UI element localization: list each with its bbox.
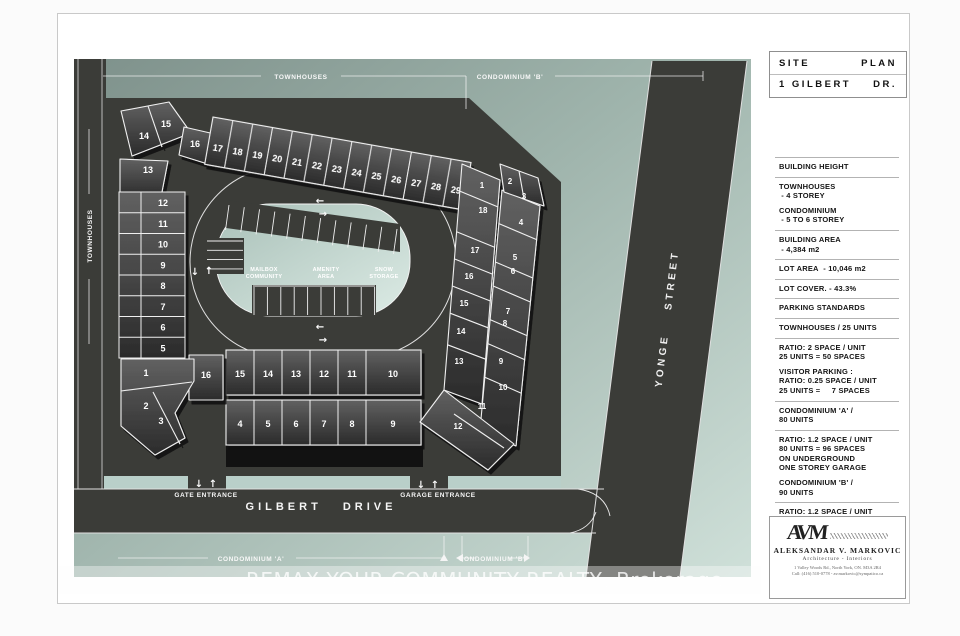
info-line: 25 UNITS = 7 SPACES [779, 386, 906, 396]
unit-number: 22 [311, 160, 323, 172]
info-line: RATIO: 2 SPACE / UNIT [779, 343, 906, 353]
label-townhouses-top: TOWNHOUSES [274, 74, 327, 81]
label-condo-b-bottom: CONDOMINIUM 'B' [459, 556, 526, 563]
info-line: 90 UNITS [779, 488, 906, 498]
info-line: ONE STOREY GARAGE [779, 463, 906, 473]
unit-number: 5 [513, 253, 518, 262]
info-section: LOT COVER. - 43.3% [769, 284, 906, 294]
svg-text:↓: ↓ [417, 480, 425, 491]
unit-number: 1 [143, 368, 148, 378]
unit-number: 15 [460, 299, 469, 308]
info-line: LOT AREA - 10,046 m2 [779, 264, 906, 274]
info-section: CONDOMINIUM - 5 TO 6 STOREY [769, 206, 906, 225]
unit-number: 19 [252, 150, 264, 162]
label-condo-b-top: CONDOMINIUM 'B' [477, 74, 544, 81]
info-line: CONDOMINIUM [779, 206, 906, 216]
unit-number: 25 [371, 170, 383, 182]
info-section: LOT AREA - 10,046 m2 [769, 264, 906, 274]
info-line: BUILDING HEIGHT [779, 162, 906, 172]
unit-number: 10 [499, 383, 508, 392]
svg-text:↑: ↑ [431, 480, 439, 491]
info-line: RATIO: 0.25 SPACE / UNIT [779, 376, 906, 386]
unit-number: 21 [291, 157, 303, 169]
info-line: - 5 TO 6 STOREY [779, 215, 906, 225]
info-line: 80 UNITS = 96 SPACES [779, 444, 906, 454]
info-line: - 4,384 m2 [779, 245, 906, 255]
watermark-text: REMAX YOUR COMMUNITY REALTY, Brokerage [208, 568, 761, 592]
left-road [74, 59, 106, 489]
info-section: RATIO: 1.2 SPACE / UNIT80 UNITS = 96 SPA… [769, 435, 906, 473]
title-dr: DR. [873, 75, 897, 95]
svg-text:↓: ↓ [191, 267, 199, 278]
unit-number: 6 [511, 267, 516, 276]
svg-text:↑: ↑ [205, 266, 213, 277]
unit-number: 20 [271, 153, 283, 165]
label-gilbert-drive: GILBERT DRIVE [246, 501, 397, 513]
unit-number: 10 [158, 240, 168, 250]
unit-number: 12 [158, 198, 168, 208]
unit-number: 7 [321, 419, 326, 429]
unit-number: 11 [158, 219, 168, 229]
unit-number: 14 [263, 369, 273, 379]
unit-number: 4 [519, 218, 524, 227]
info-section: CONDOMINIUM 'A' /80 UNITS [769, 406, 906, 425]
avm-monogram: AVM [786, 520, 827, 545]
label-townhouses-left: TOWNHOUSES [87, 209, 94, 262]
info-line: ON UNDERGROUND [779, 454, 906, 464]
info-line: 25 UNITS = 50 SPACES [779, 352, 906, 362]
unit-number: 4 [237, 419, 242, 429]
info-section: BUILDING HEIGHT [769, 162, 906, 172]
title-plan: PLAN [861, 54, 897, 74]
unit-number: 27 [410, 177, 422, 189]
garage-driveway [410, 476, 448, 489]
unit-number: 9 [499, 357, 504, 366]
unit-number: 8 [160, 281, 165, 291]
info-line: TOWNHOUSES [779, 182, 906, 192]
unit-number: 26 [391, 174, 403, 186]
info-line: RATIO: 1.2 SPACE / UNIT [779, 435, 906, 445]
unit-number: 13 [143, 165, 153, 175]
unit-number: 5 [160, 343, 165, 353]
unit-number: 8 [349, 419, 354, 429]
info-line: BUILDING AREA [779, 235, 906, 245]
gate-driveway [188, 476, 226, 489]
unit-number: 23 [331, 163, 343, 175]
unit-number: 8 [503, 319, 508, 328]
architect-logo-block: AVM ALEKSANDAR V. MARKOVIC Architecture … [769, 516, 906, 599]
label-amenity: AMENITY [313, 267, 340, 273]
unit-number: 16 [201, 370, 211, 380]
unit-number: 9 [390, 419, 395, 429]
townhouse-left-column: 12111098765 [119, 192, 185, 358]
building-plinth [226, 445, 423, 467]
unit-number: 12 [454, 422, 463, 431]
info-line: CONDOMINIUM 'A' / [779, 406, 906, 416]
svg-text:AREA: AREA [318, 274, 335, 280]
site-plan-drawing: 17181920212223242526272829 12111098765 1… [58, 14, 761, 602]
unit-number: 10 [388, 369, 398, 379]
unit-number: 14 [139, 131, 149, 141]
label-mailbox: MAILBOX [250, 267, 277, 273]
info-line: PARKING STANDARDS [779, 303, 906, 313]
svg-text:COMMUNITY: COMMUNITY [246, 274, 283, 280]
unit-number: 28 [430, 181, 442, 193]
info-line: 80 UNITS [779, 415, 906, 425]
unit-number: 16 [190, 139, 200, 149]
svg-text:STORAGE: STORAGE [369, 274, 398, 280]
architect-name: ALEKSANDAR V. MARKOVIC [770, 546, 905, 555]
unit-number: 13 [455, 357, 464, 366]
info-panel: BUILDING HEIGHTTOWNHOUSES - 4 STOREYCOND… [769, 153, 906, 551]
label-gate-entrance: GATE ENTRANCE [174, 492, 237, 499]
unit-number: 15 [235, 369, 245, 379]
unit-number: 16 [465, 272, 474, 281]
title-block: SITE PLAN 1 GILBERT DR. [769, 51, 907, 98]
info-section: CONDOMINIUM 'B' /90 UNITS [769, 478, 906, 497]
info-section: RATIO: 2 SPACE / UNIT25 UNITS = 50 SPACE… [769, 343, 906, 362]
unit-number: 18 [479, 206, 488, 215]
info-section: PARKING STANDARDS [769, 303, 906, 313]
info-line: CONDOMINIUM 'B' / [779, 478, 906, 488]
info-section: TOWNHOUSES - 4 STOREY [769, 182, 906, 201]
sidewalk [104, 476, 561, 489]
unit-number: 7 [160, 302, 165, 312]
unit-number: 12 [319, 369, 329, 379]
title-address: 1 GILBERT [779, 75, 851, 95]
info-section: VISITOR PARKING :RATIO: 0.25 SPACE / UNI… [769, 367, 906, 396]
unit-number: 3 [158, 416, 163, 426]
unit-number: 11 [478, 402, 487, 411]
svg-text:↓: ↓ [195, 479, 203, 490]
architect-subtitle: Architecture - Interiors [770, 556, 905, 562]
page: { "title_block": { "line1_left": "SITE",… [0, 0, 960, 636]
hatch-line [830, 533, 888, 539]
architect-contact: Call: (416) 510-0778 - av.markovic@sympa… [770, 571, 905, 577]
svg-text:→: → [319, 209, 327, 220]
label-garage-entrance: GARAGE ENTRANCE [400, 492, 476, 499]
title-site: SITE [779, 54, 810, 74]
unit-number: 17 [212, 143, 224, 155]
unit-number: 14 [457, 327, 466, 336]
unit-number: 6 [160, 323, 165, 333]
label-snow-storage: SNOW [375, 267, 394, 273]
info-section: BUILDING AREA - 4,384 m2 [769, 235, 906, 254]
unit-number: 2 [143, 401, 148, 411]
parking-stalls-bottom [252, 285, 376, 316]
svg-text:←: ← [316, 322, 324, 333]
unit-number: 3 [522, 192, 527, 201]
unit-number: 9 [160, 260, 165, 270]
unit-number: 24 [351, 167, 363, 179]
condo-a-lower-row: 456789 [226, 400, 421, 445]
info-line: LOT COVER. - 43.3% [779, 284, 906, 294]
unit-number: 11 [347, 369, 357, 379]
label-condo-a-bottom: CONDOMINIUM 'A' [218, 556, 285, 563]
unit-number: 7 [506, 307, 511, 316]
unit-number: 13 [291, 369, 301, 379]
unit-number: 15 [161, 119, 171, 129]
svg-text:←: ← [316, 196, 324, 207]
unit-number: 5 [265, 419, 270, 429]
svg-text:→: → [319, 335, 327, 346]
condo-a-upper-row: 151413121110 [226, 350, 421, 395]
unit-number: 18 [232, 146, 244, 158]
svg-text:↑: ↑ [209, 479, 217, 490]
info-line: - 4 STOREY [779, 191, 906, 201]
info-line: TOWNHOUSES / 25 UNITS [779, 323, 906, 333]
info-line: VISITOR PARKING : [779, 367, 906, 377]
info-section: TOWNHOUSES / 25 UNITS [769, 323, 906, 333]
unit-number: 17 [471, 246, 480, 255]
unit-number: 1 [480, 181, 485, 190]
drawing-sheet: 17181920212223242526272829 12111098765 1… [57, 13, 910, 604]
unit-number: 2 [508, 177, 513, 186]
unit-number: 6 [293, 419, 298, 429]
